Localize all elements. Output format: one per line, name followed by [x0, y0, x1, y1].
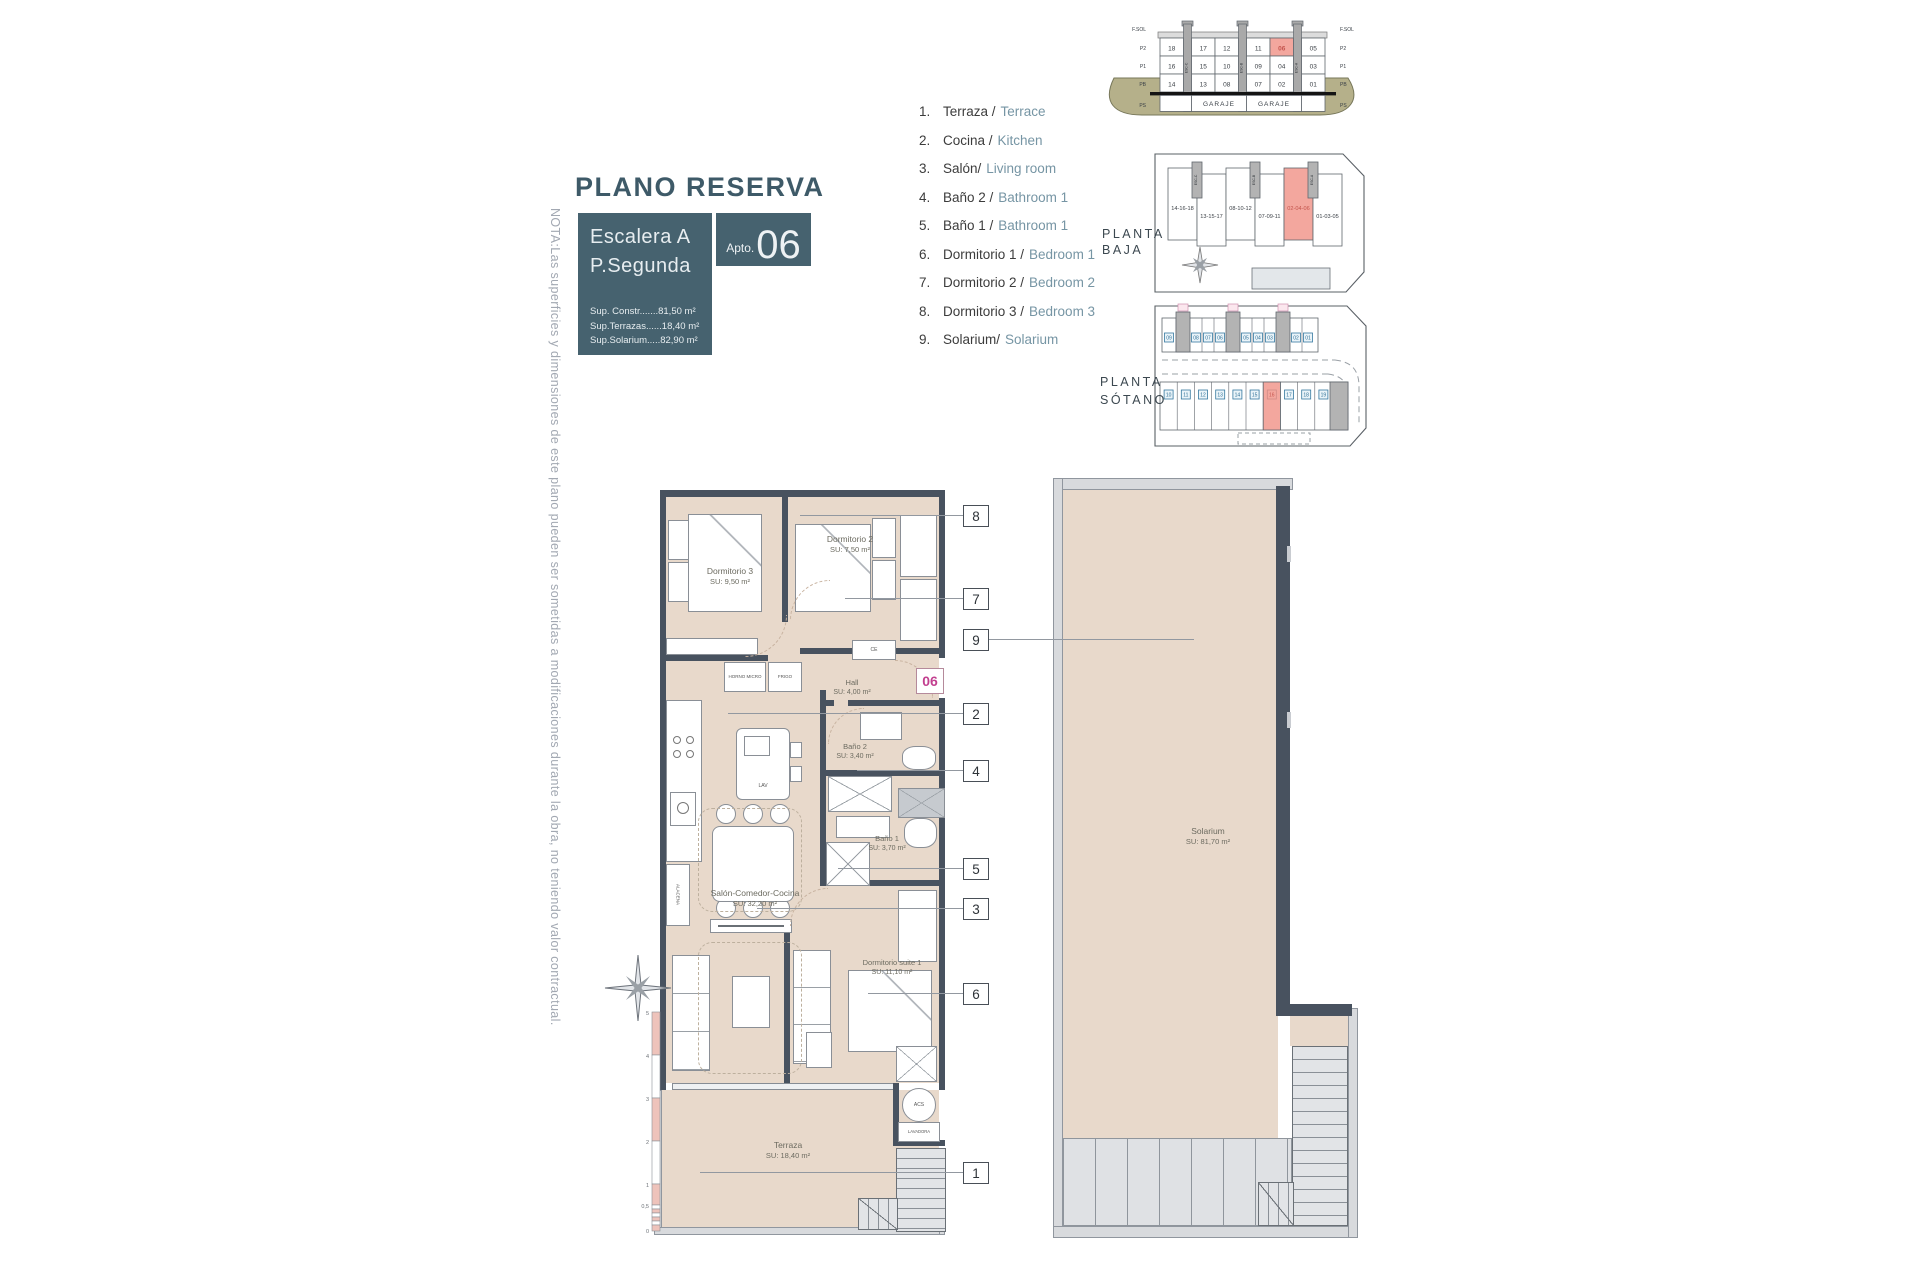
callout-6: 6: [963, 983, 989, 1005]
section-cell: 17: [1200, 46, 1208, 53]
island-sink: [744, 736, 770, 756]
toilet: [902, 746, 936, 770]
planta-sotano-diagram: 09 08 07 06 05 04 03 02 01 10 11 12 13 1…: [1100, 300, 1370, 462]
core-label: ESC-A: [1295, 62, 1299, 73]
callout-7: 7: [963, 588, 989, 610]
surface-summary: Sup. Constr.......81,50 m² Sup.Terrazas.…: [590, 305, 699, 348]
sotano-cell-highlight: [1263, 382, 1280, 430]
level-label: PS: [1340, 103, 1347, 109]
callout-8: 8: [963, 505, 989, 527]
surface-terrazas: Sup.Terrazas......18,40 m²: [590, 320, 699, 334]
bed: [848, 970, 932, 1052]
baja-unit: 07-09-11: [1259, 214, 1281, 220]
leader-line: [700, 1172, 963, 1173]
section-cell: 18: [1168, 46, 1176, 53]
scale-tick: 4: [646, 1054, 649, 1060]
closet: [900, 579, 937, 641]
room-label-dorm3: Dormitorio 3SU: 9,50 m²: [698, 566, 762, 587]
callout-9: 9: [963, 629, 989, 651]
leader-line: [728, 713, 963, 714]
baja-unit-highlight-label: 02-04-06: [1287, 206, 1309, 212]
section-cell: 05: [1310, 46, 1318, 53]
section-cell: 11: [1255, 46, 1262, 53]
ramp-block: [1330, 382, 1348, 430]
level-label: F.SOL: [1340, 27, 1354, 33]
level-label: PS: [1139, 103, 1146, 109]
oven-microwave: HORNO MICRO: [724, 662, 766, 692]
legend-item: 3.Salón/Living room: [919, 161, 1095, 176]
section-cell: 08: [1223, 82, 1231, 89]
core-label: ESC-C: [1185, 62, 1189, 73]
stair-core: [1226, 312, 1240, 352]
baja-unit: 13-15-17: [1200, 214, 1222, 220]
sotano-cell-highlight-label: 16: [1269, 393, 1275, 399]
section-cell: 07: [1255, 82, 1263, 89]
solarium-floor: [1290, 1016, 1348, 1046]
level-label: P1: [1140, 64, 1146, 70]
washer: LAVADORA: [898, 1122, 940, 1142]
room-label-suite: Dormitorio suite 1SU: 11,10 m²: [846, 958, 938, 977]
planta-baja-label: PLANTA: [1102, 227, 1165, 241]
section-cell: 12: [1223, 46, 1231, 53]
section-cell: 03: [1310, 64, 1318, 71]
legend-item: 2.Cocina /Kitchen: [919, 133, 1095, 148]
street-slab: [1150, 92, 1336, 95]
section-cell-highlight: 06: [1278, 46, 1286, 53]
legend-item: 1.Terraza /Terrace: [919, 104, 1095, 119]
room-label-solarium: SolariumSU: 81,70 m²: [1162, 826, 1254, 847]
baja-unit: 01-03-05: [1316, 214, 1338, 220]
solarium-parapet: [1053, 1226, 1356, 1238]
pillow: [668, 562, 690, 602]
leader-line: [838, 868, 963, 869]
level-label: P1: [1340, 64, 1346, 70]
level-label: P2: [1140, 46, 1146, 52]
leader-line: [800, 515, 963, 516]
sotano-cell: 07: [1205, 336, 1211, 342]
window: [672, 1083, 894, 1090]
callout-2: 2: [963, 703, 989, 725]
core-label: ESC-B: [1240, 62, 1244, 73]
stairs: [896, 1148, 946, 1232]
sotano-cell: 09: [1166, 336, 1172, 342]
sotano-cell: 18: [1303, 393, 1309, 399]
section-cell: 16: [1168, 64, 1176, 71]
island-stool: [790, 742, 802, 758]
section-cell: 01: [1310, 82, 1318, 89]
closet: [898, 890, 937, 962]
wall-notch: [1287, 546, 1291, 562]
wall: [939, 698, 945, 1090]
solarium-parapet: [1053, 478, 1063, 1238]
sotano-cell: 01: [1305, 336, 1311, 342]
shower: [828, 776, 892, 812]
section-cell: 10: [1223, 64, 1231, 71]
living-zone-outline: [698, 942, 802, 1074]
pantry: ALACENA: [666, 864, 690, 926]
apto-label: Apto.: [726, 241, 754, 255]
stair-core: [1176, 312, 1190, 352]
legend-item: 8.Dormitorio 3 /Bedroom 3: [919, 304, 1095, 319]
core-label: ESC-B: [1252, 174, 1256, 185]
legend-item: 6.Dormitorio 1 /Bedroom 1: [919, 247, 1095, 262]
section-cell: 15: [1200, 64, 1208, 71]
sotano-cell: 13: [1217, 393, 1223, 399]
garaje-label: GARAJE: [1258, 101, 1290, 108]
baja-unit: 08-10-12: [1229, 206, 1251, 212]
leader-line: [845, 598, 963, 599]
section-cell: 13: [1200, 82, 1208, 89]
scale-bar: 5 4 3 2 1 0,5 0: [638, 1005, 672, 1240]
sotano-cell: 04: [1255, 336, 1261, 342]
core-tag: [1278, 304, 1288, 311]
room-label-terraza: TerrazaSU: 18,40 m²: [752, 1140, 824, 1161]
bed: [688, 514, 762, 612]
solarium-wall: [1276, 1004, 1352, 1016]
room-label-dorm2: Dormitorio 2SU: 7,50 m²: [816, 534, 884, 555]
core-tag: [1178, 304, 1188, 311]
burner: [686, 750, 694, 758]
room-label-bano1: Baño 1SU: 3,70 m²: [848, 834, 926, 853]
scale-tick: 3: [646, 1097, 649, 1103]
baja-unit: 14-16-18: [1171, 206, 1193, 212]
leader-line: [868, 993, 963, 994]
sotano-cell: 19: [1321, 393, 1327, 399]
island-stool: [790, 766, 802, 782]
ce-cabinet: CE: [852, 640, 896, 660]
pillow: [668, 520, 690, 560]
pillow: [872, 560, 896, 600]
legend-item: 5.Baño 1 /Bathroom 1: [919, 218, 1095, 233]
sotano-cell: 03: [1267, 336, 1273, 342]
wall: [826, 700, 834, 706]
wall-notch: [1287, 712, 1291, 728]
solarium-stairs: [1292, 1046, 1348, 1226]
stair-diagonal: [1258, 1182, 1294, 1226]
section-cell: 04: [1278, 64, 1286, 71]
core-label: ESC-A: [1310, 174, 1314, 185]
pool: [1252, 268, 1330, 289]
wall: [848, 700, 939, 706]
callout-5: 5: [963, 858, 989, 880]
sotano-cell: 17: [1286, 393, 1292, 399]
scale-tick: 0: [646, 1229, 649, 1235]
leader-line: [989, 639, 1194, 640]
surface-constr: Sup. Constr.......81,50 m²: [590, 305, 699, 319]
planta-baja-label: BAJA: [1102, 243, 1143, 257]
wall: [782, 497, 788, 622]
sotano-cell: 12: [1200, 393, 1206, 399]
level-label: P2: [1340, 46, 1346, 52]
legend-item: 7.Dormitorio 2 /Bedroom 2: [919, 275, 1095, 290]
core-label: ESC-C: [1194, 174, 1198, 185]
bench: [806, 1032, 832, 1068]
sotano-cell: 02: [1293, 336, 1299, 342]
scale-tick: 2: [646, 1140, 649, 1146]
escalera-label: Escalera A: [590, 223, 706, 252]
room-label-salon: Salón-Comedor-CocinaSU: 32,20 m²: [700, 888, 810, 909]
planta-baja-diagram: 14-16-18 13-15-17 08-10-12 07-09-11 02-0…: [1100, 140, 1370, 305]
level-label: PB: [1340, 82, 1347, 88]
planta-sotano-label: SÓTANO: [1100, 392, 1167, 407]
leader-line: [857, 770, 963, 771]
room-label-hall: HallSU: 4,00 m²: [822, 678, 882, 697]
stair-diagonal: [858, 1198, 898, 1230]
solarium-wall: [1276, 486, 1290, 1012]
page-title: PLANO RESERVA: [575, 172, 825, 203]
section-cell: 14: [1168, 82, 1176, 89]
disclaimer-note: NOTA:Las superficies y dimensiones de es…: [548, 208, 562, 1148]
ac-platform: [898, 788, 945, 818]
sink-basin: [677, 802, 689, 814]
sotano-cell: 15: [1252, 393, 1258, 399]
solarium-parapet: [1053, 478, 1293, 490]
sotano-cell: 08: [1193, 336, 1199, 342]
level-label: F.SOL: [1132, 27, 1146, 33]
room-legend: 1.Terraza /Terrace 2.Cocina /Kitchen 3.S…: [879, 104, 1095, 361]
burner: [673, 750, 681, 758]
sotano-cell: 06: [1217, 336, 1223, 342]
legend-item: 9.Solarium/Solarium: [919, 332, 1095, 347]
unit-info-box: Escalera A P.Segunda Sup. Constr.......8…: [578, 213, 712, 355]
solarium-parapet: [1348, 1008, 1358, 1238]
unit-number-badge: 06: [916, 668, 944, 694]
scale-tick: 0,5: [641, 1204, 649, 1210]
wardrobe: [896, 1046, 937, 1082]
scale-tick: 1: [646, 1183, 649, 1189]
callout-1: 1: [963, 1162, 989, 1184]
tv: [718, 925, 784, 927]
plano-reserva-sheet: NOTA:Las superficies y dimensiones de es…: [0, 0, 1920, 1280]
sotano-cell: 14: [1235, 393, 1241, 399]
surface-solarium: Sup.Solarium.....82,90 m²: [590, 334, 699, 348]
burner: [686, 736, 694, 744]
section-cell: 09: [1255, 64, 1263, 71]
burner: [673, 736, 681, 744]
acs-boiler: ACS: [902, 1088, 936, 1122]
lav-label: LAV: [742, 780, 784, 792]
planta-sotano-label: PLANTA: [1100, 375, 1163, 389]
section-cell: 02: [1278, 82, 1286, 89]
garaje-label: GARAJE: [1203, 101, 1235, 108]
sotano-cell: 11: [1183, 393, 1188, 399]
kitchen-counter: [666, 700, 702, 862]
legend-item: 4.Baño 2 /Bathroom 1: [919, 190, 1095, 205]
room-label-bano2: Baño 2SU: 3,40 m²: [816, 742, 894, 761]
closet: [900, 515, 937, 577]
core-tag: [1228, 304, 1238, 311]
apto-number: 06: [756, 229, 801, 261]
wall: [660, 490, 945, 497]
callout-4: 4: [963, 760, 989, 782]
apartment-number-box: Apto. 06: [716, 213, 811, 266]
stair-core: [1276, 312, 1290, 352]
fridge: FRIGO: [768, 662, 802, 692]
bathroom-sink: [860, 712, 902, 740]
leader-line: [757, 908, 963, 909]
sotano-cell: 05: [1243, 336, 1249, 342]
scale-tick: 5: [646, 1011, 649, 1017]
level-label: PB: [1139, 82, 1146, 88]
solarium-floor: [1063, 490, 1278, 1138]
callout-3: 3: [963, 898, 989, 920]
building-section-diagram: 18 16 14 17 15 13 12 10 08 11 09 07 06 0…: [1100, 12, 1360, 122]
planta-label: P.Segunda: [590, 252, 706, 281]
